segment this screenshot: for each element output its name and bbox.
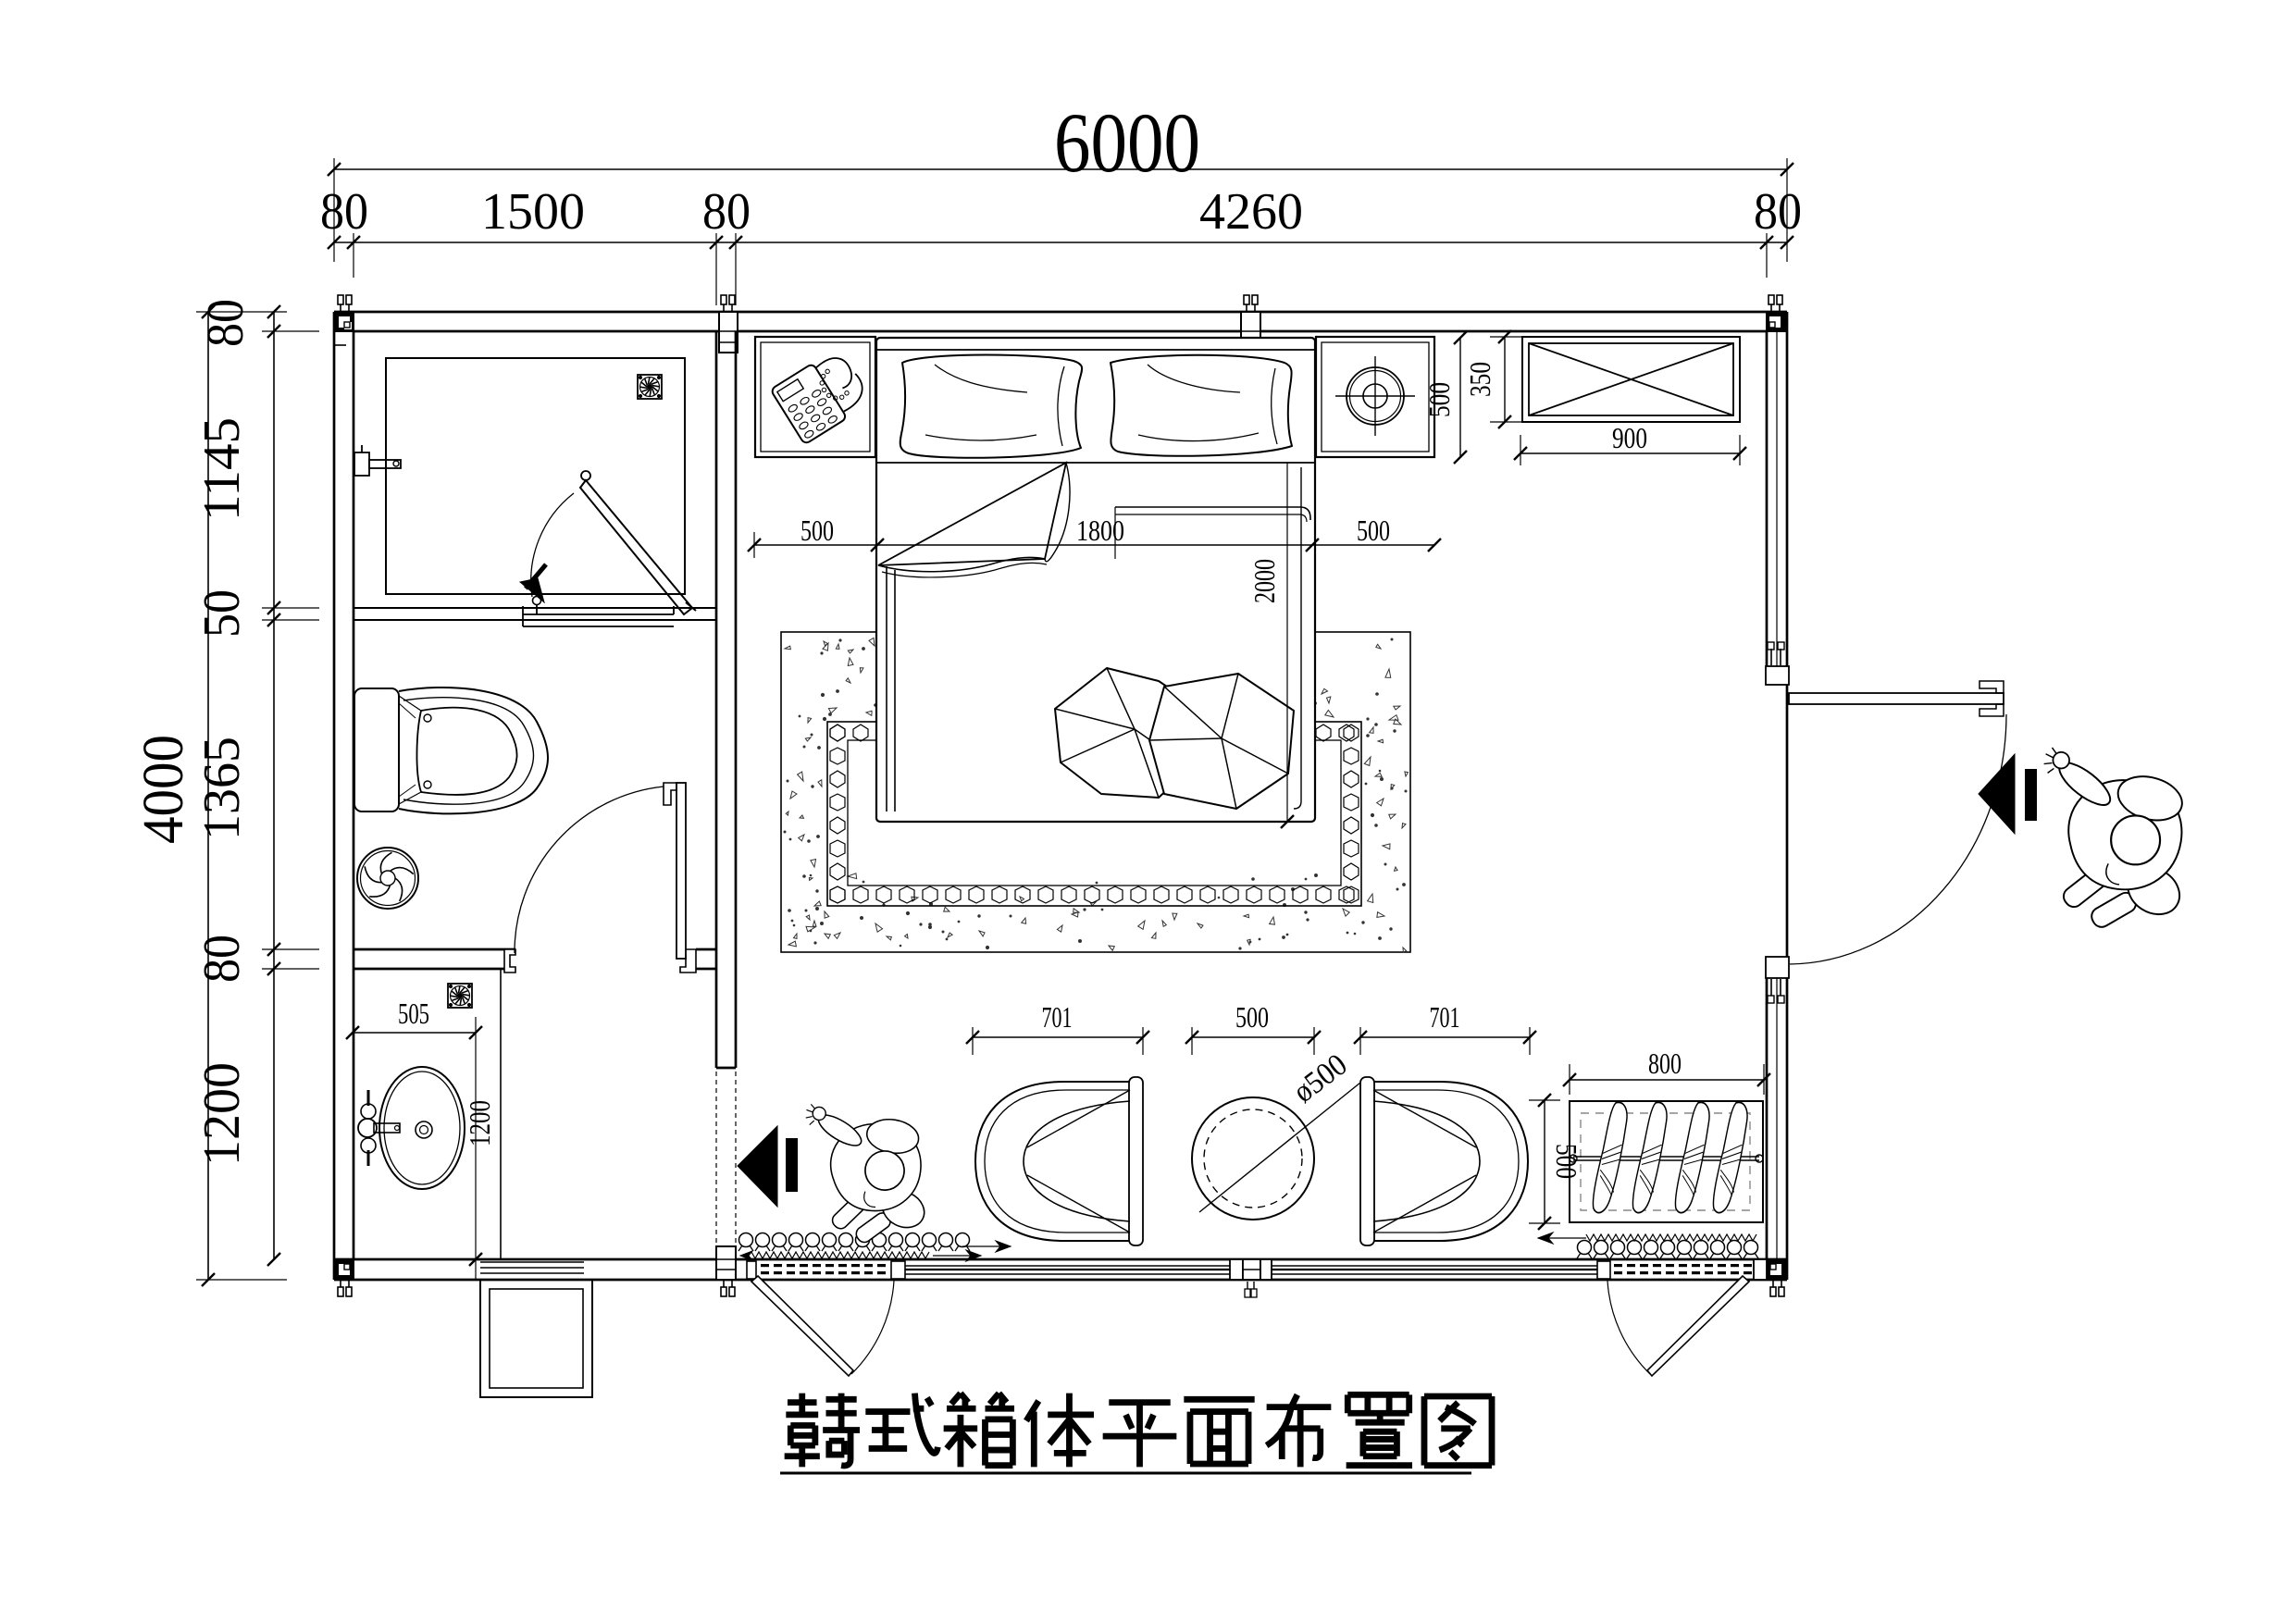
svg-text:500: 500 <box>1422 382 1456 417</box>
svg-text:1145: 1145 <box>193 417 251 521</box>
svg-text:80: 80 <box>320 183 368 241</box>
svg-text:500: 500 <box>1550 1144 1583 1179</box>
svg-text:500: 500 <box>1235 1000 1269 1034</box>
svg-text:900: 900 <box>1612 421 1647 454</box>
svg-text:701: 701 <box>1430 1000 1460 1034</box>
svg-text:701: 701 <box>1042 1000 1073 1034</box>
svg-text:1500: 1500 <box>481 183 585 241</box>
svg-text:80: 80 <box>702 183 751 241</box>
svg-text:2000: 2000 <box>1247 559 1281 603</box>
svg-text:80: 80 <box>193 935 251 983</box>
svg-text:505: 505 <box>398 997 429 1030</box>
svg-text:4000: 4000 <box>132 735 195 844</box>
svg-text:1200: 1200 <box>193 1062 251 1166</box>
svg-text:1200: 1200 <box>463 1100 496 1146</box>
svg-text:500: 500 <box>1357 514 1390 547</box>
svg-text:50: 50 <box>193 589 251 638</box>
svg-text:500: 500 <box>800 514 834 547</box>
svg-text:800: 800 <box>1648 1047 1682 1080</box>
svg-text:80: 80 <box>197 299 254 347</box>
svg-text:1800: 1800 <box>1076 514 1124 547</box>
svg-text:350: 350 <box>1463 362 1496 397</box>
svg-text:4260: 4260 <box>1199 183 1303 241</box>
svg-text:1365: 1365 <box>193 737 251 840</box>
svg-text:80: 80 <box>1754 183 1802 241</box>
svg-text:6000: 6000 <box>1054 95 1200 190</box>
